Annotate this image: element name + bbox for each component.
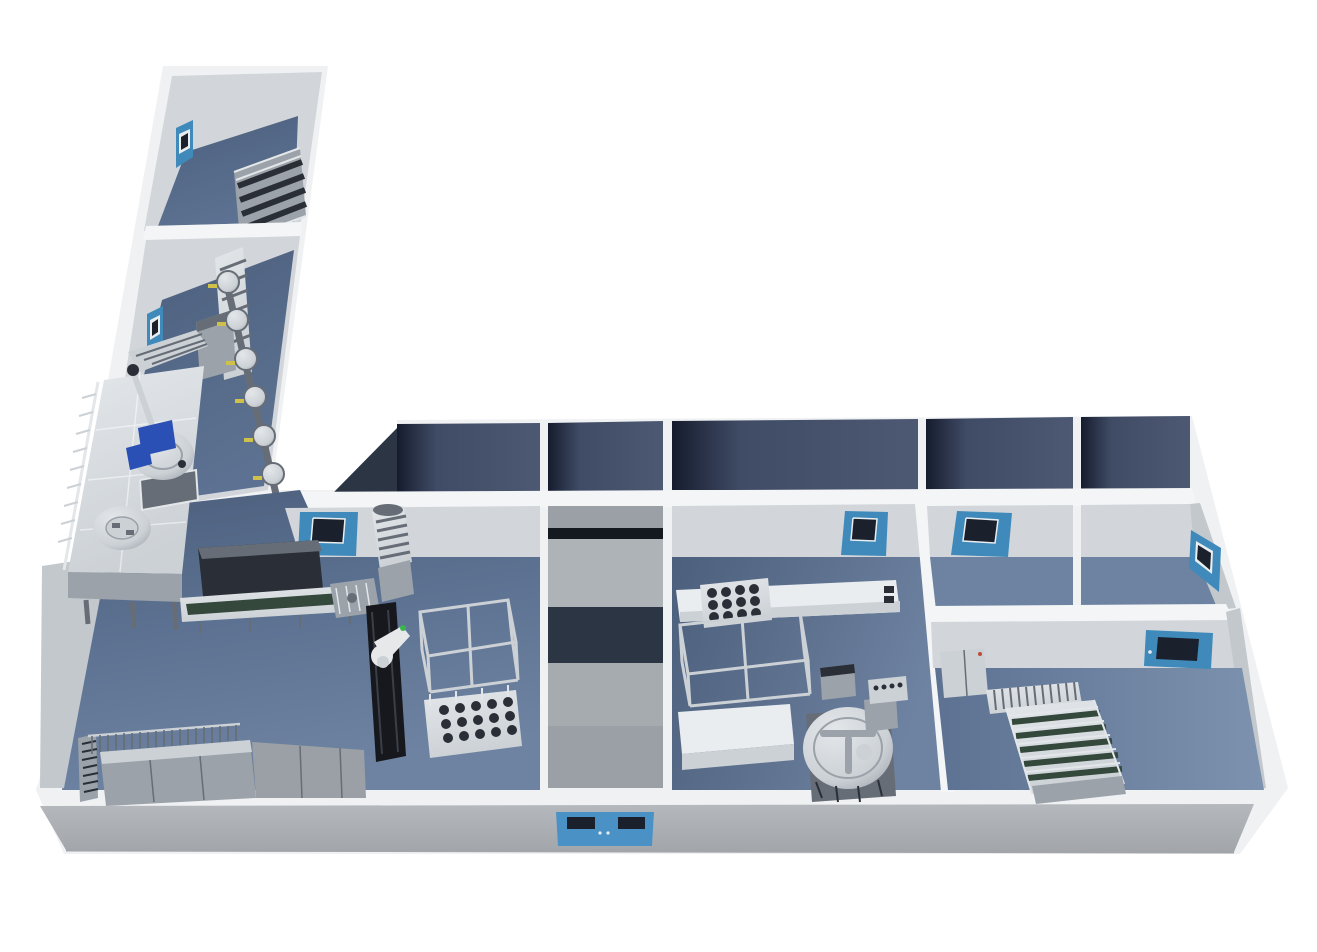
packing-room-door xyxy=(1144,630,1213,669)
filling-room-door xyxy=(841,511,888,556)
utility-cabinet xyxy=(940,648,988,698)
pass-window-right xyxy=(618,817,645,829)
vessel-lid xyxy=(93,506,151,550)
front-exterior-wall xyxy=(40,804,1254,852)
packing-room xyxy=(929,604,1266,804)
pass-window-left xyxy=(567,817,595,829)
airlock-b-wall-face xyxy=(1081,504,1196,557)
airlock-a-door xyxy=(951,511,1012,557)
platform-front-face xyxy=(68,572,182,602)
facility-3d-render xyxy=(0,0,1317,952)
airlock-a-floor xyxy=(930,557,1073,610)
bench-row xyxy=(100,740,366,806)
storage-room xyxy=(144,72,322,240)
airlock-room-a xyxy=(927,505,1073,610)
corner-shade-triangle xyxy=(334,428,397,492)
back-exterior-band xyxy=(334,416,1190,492)
front-pass-through xyxy=(556,812,654,846)
central-corridor-core xyxy=(548,506,663,788)
filling-room xyxy=(672,504,948,802)
table-divider-vertical xyxy=(845,736,852,774)
packing-divider-cap xyxy=(929,604,1234,622)
white-trough xyxy=(678,704,794,770)
facility-svg xyxy=(0,0,1317,952)
